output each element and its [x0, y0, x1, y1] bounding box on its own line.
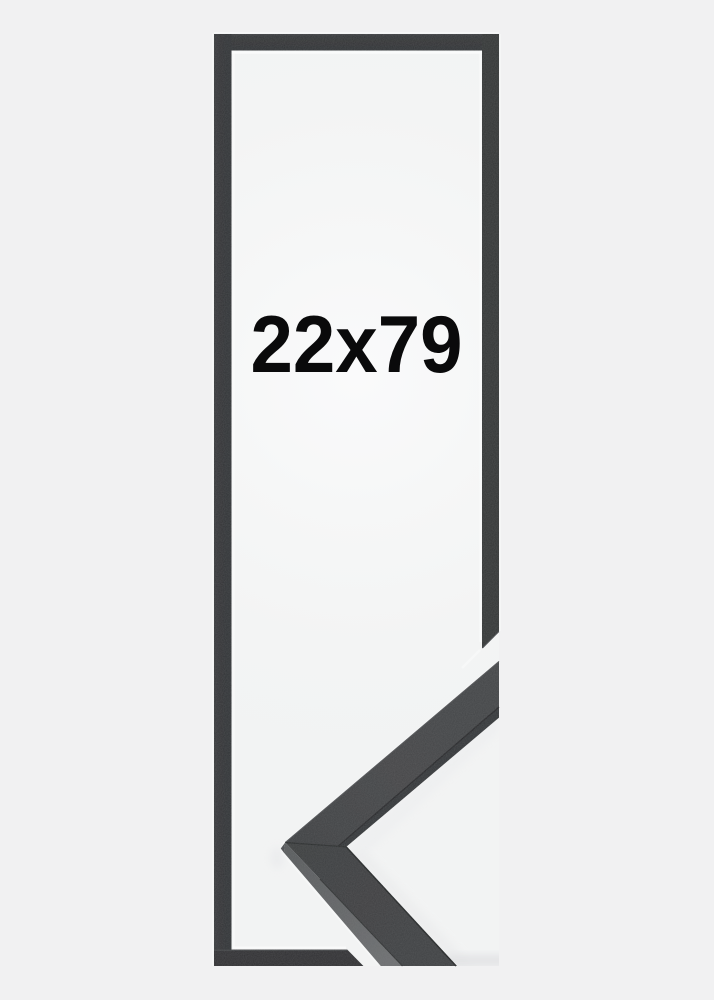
svg-text:22x79: 22x79 — [251, 300, 463, 390]
